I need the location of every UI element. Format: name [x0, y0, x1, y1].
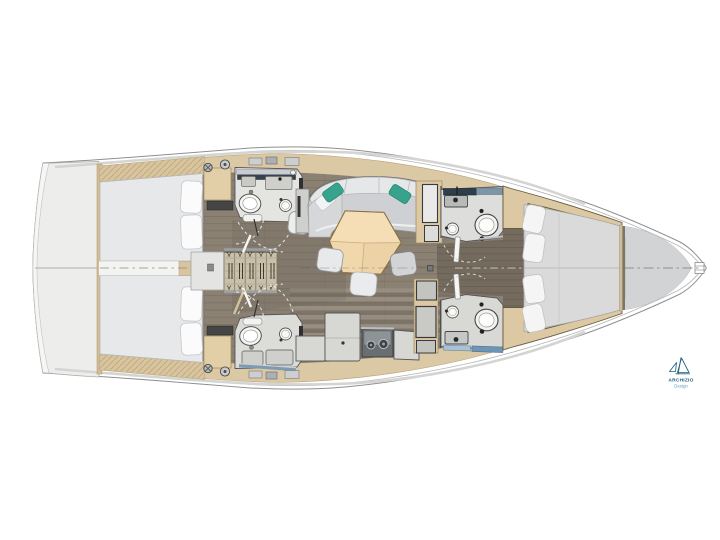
svg-text:Design: Design	[674, 384, 688, 389]
